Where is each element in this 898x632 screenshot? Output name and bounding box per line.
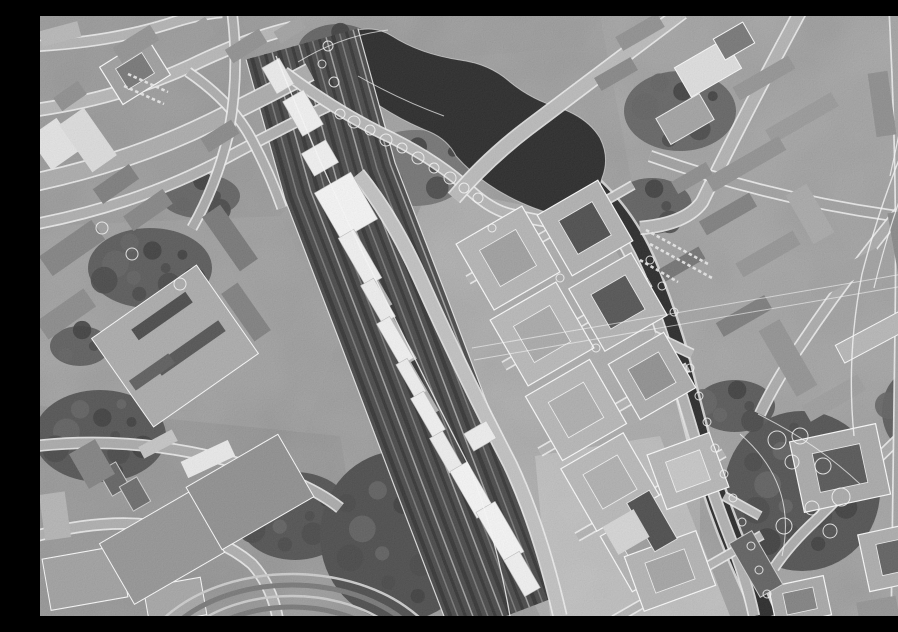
photo-grain-layer: [40, 16, 898, 616]
aerial-photo-map: [40, 16, 898, 616]
satellite-map-canvas: [40, 16, 898, 616]
